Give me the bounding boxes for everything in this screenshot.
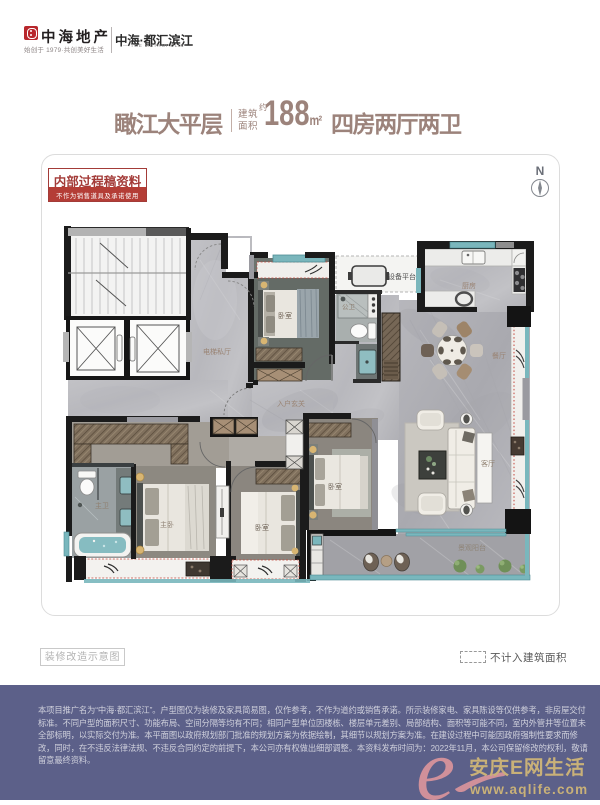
svg-text:安庆E网生活: 安庆E网生活 (469, 756, 586, 779)
svg-text:餐厅: 餐厅 (492, 351, 506, 360)
svg-text:入户玄关: 入户玄关 (277, 399, 305, 408)
svg-text:卧室: 卧室 (278, 311, 292, 320)
svg-text:主卧: 主卧 (160, 520, 174, 529)
svg-text:www.aqlife.com: www.aqlife.com (469, 782, 588, 797)
svg-text:厨房: 厨房 (462, 281, 476, 290)
svg-text:电梯私厅: 电梯私厅 (203, 347, 231, 356)
svg-text:卧室: 卧室 (328, 482, 342, 491)
svg-text:景观阳台: 景观阳台 (458, 543, 486, 552)
svg-text:客厅: 客厅 (481, 459, 495, 468)
svg-text:e: e (416, 745, 455, 800)
svg-text:设备平台: 设备平台 (388, 272, 416, 281)
svg-text:主卫: 主卫 (95, 501, 109, 510)
svg-text:公卫: 公卫 (342, 303, 356, 311)
svg-text:卧室: 卧室 (255, 523, 269, 532)
